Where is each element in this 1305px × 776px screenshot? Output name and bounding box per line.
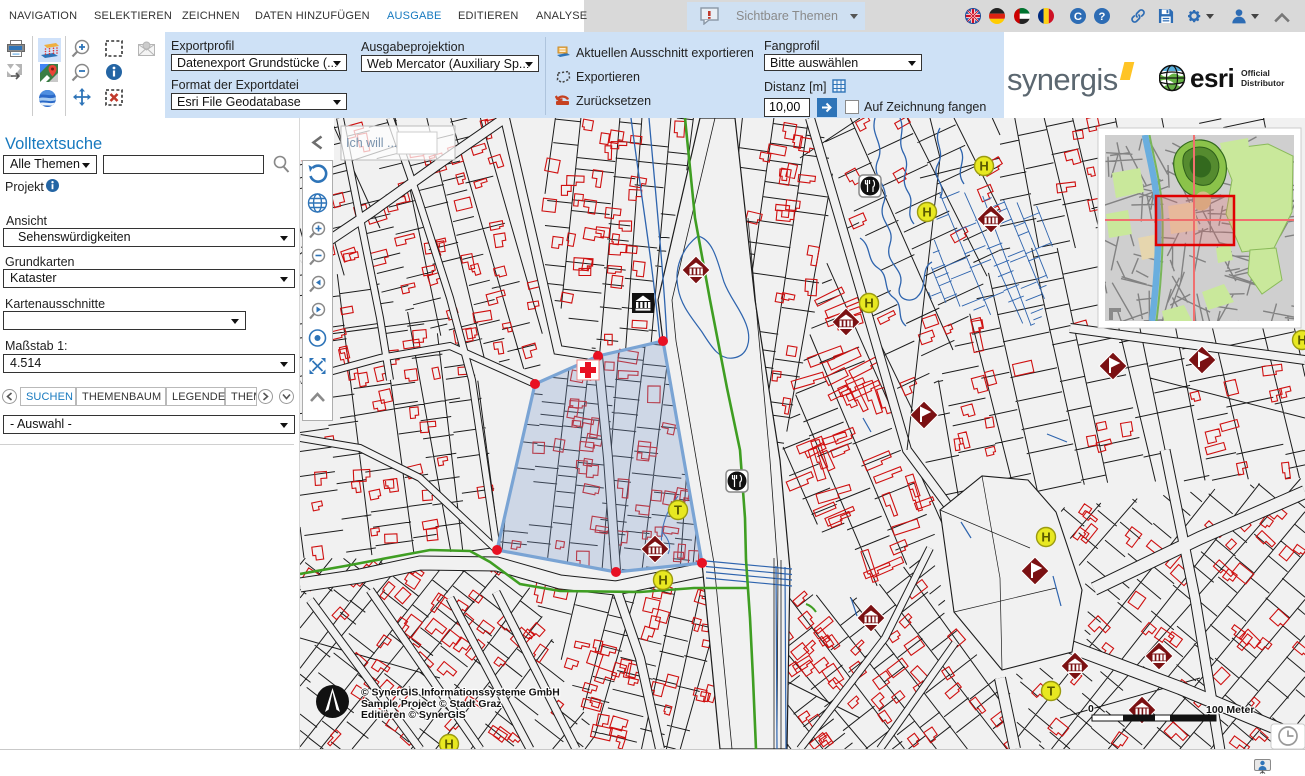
svg-text:?: ? — [1099, 11, 1106, 23]
svg-text:Ich will ...: Ich will ... — [346, 136, 397, 150]
svg-text:H: H — [864, 296, 873, 311]
svg-text:esri: esri — [1190, 64, 1234, 92]
svg-text:H: H — [922, 205, 931, 220]
svg-text:T: T — [674, 503, 682, 518]
svg-text:synergis: synergis — [1007, 62, 1118, 97]
svg-text:Official: Official — [1241, 68, 1270, 78]
svg-text:Sample Project © Stadt Graz: Sample Project © Stadt Graz — [361, 699, 501, 710]
svg-text:H: H — [1297, 333, 1305, 348]
svg-text:H: H — [1041, 530, 1050, 545]
svg-text:C: C — [1074, 11, 1082, 23]
svg-text:T: T — [1047, 684, 1055, 699]
svg-text:H: H — [444, 737, 453, 750]
svg-text:Editieren © SynerGIS: Editieren © SynerGIS — [361, 710, 466, 721]
svg-text:Distributor: Distributor — [1241, 78, 1285, 88]
svg-text:H: H — [979, 159, 988, 174]
svg-text:0: 0 — [1088, 703, 1094, 715]
svg-text:100 Meter: 100 Meter — [1206, 704, 1254, 716]
svg-text:© SynerGIS Informationssysteme: © SynerGIS Informationssysteme GmbH — [361, 688, 560, 699]
svg-text:H: H — [658, 573, 667, 588]
